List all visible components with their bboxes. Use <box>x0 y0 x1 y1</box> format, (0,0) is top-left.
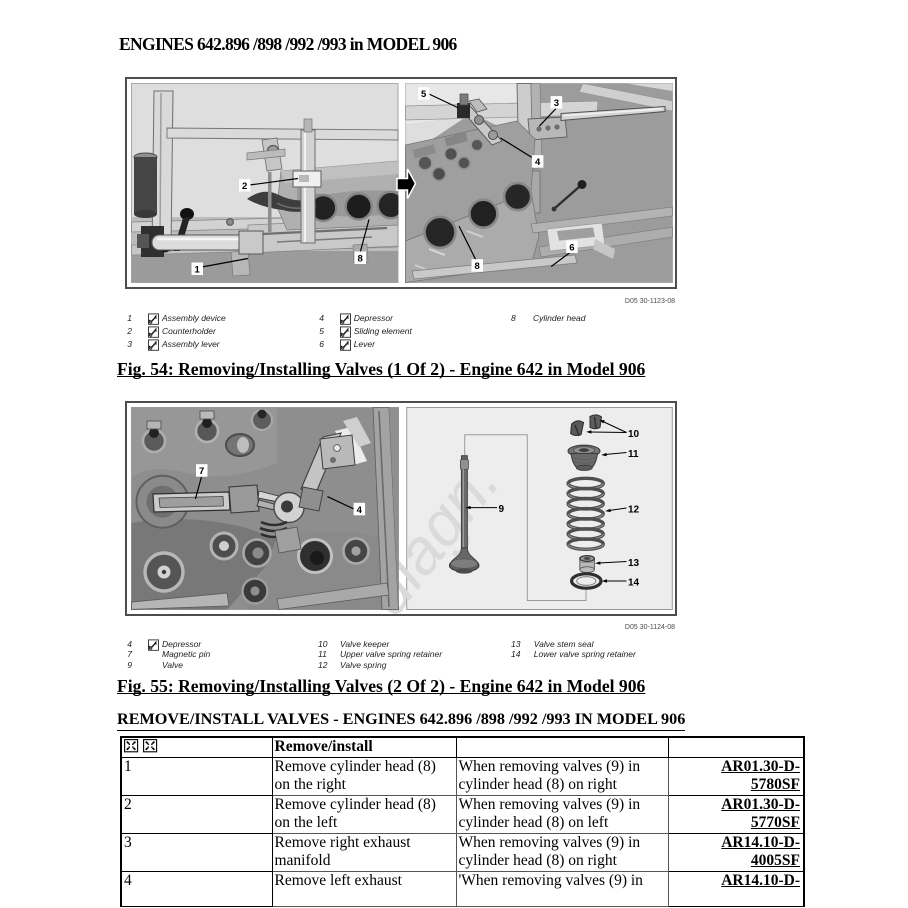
svg-text:13: 13 <box>628 558 640 569</box>
svg-text:8: 8 <box>358 254 363 265</box>
svg-text:11: 11 <box>628 449 639 460</box>
svg-text:1: 1 <box>195 265 201 276</box>
svg-text:14: 14 <box>628 577 640 588</box>
svg-text:10: 10 <box>628 429 640 440</box>
svg-text:4: 4 <box>535 157 541 168</box>
svg-text:5: 5 <box>421 89 427 100</box>
svg-text:9: 9 <box>499 504 505 515</box>
svg-text:3: 3 <box>554 98 559 109</box>
svg-text:2: 2 <box>242 181 247 192</box>
svg-text:8: 8 <box>475 261 480 272</box>
svg-text:4: 4 <box>357 505 363 516</box>
svg-text:7: 7 <box>199 466 204 477</box>
svg-text:12: 12 <box>628 504 640 515</box>
svg-text:6: 6 <box>569 243 574 254</box>
